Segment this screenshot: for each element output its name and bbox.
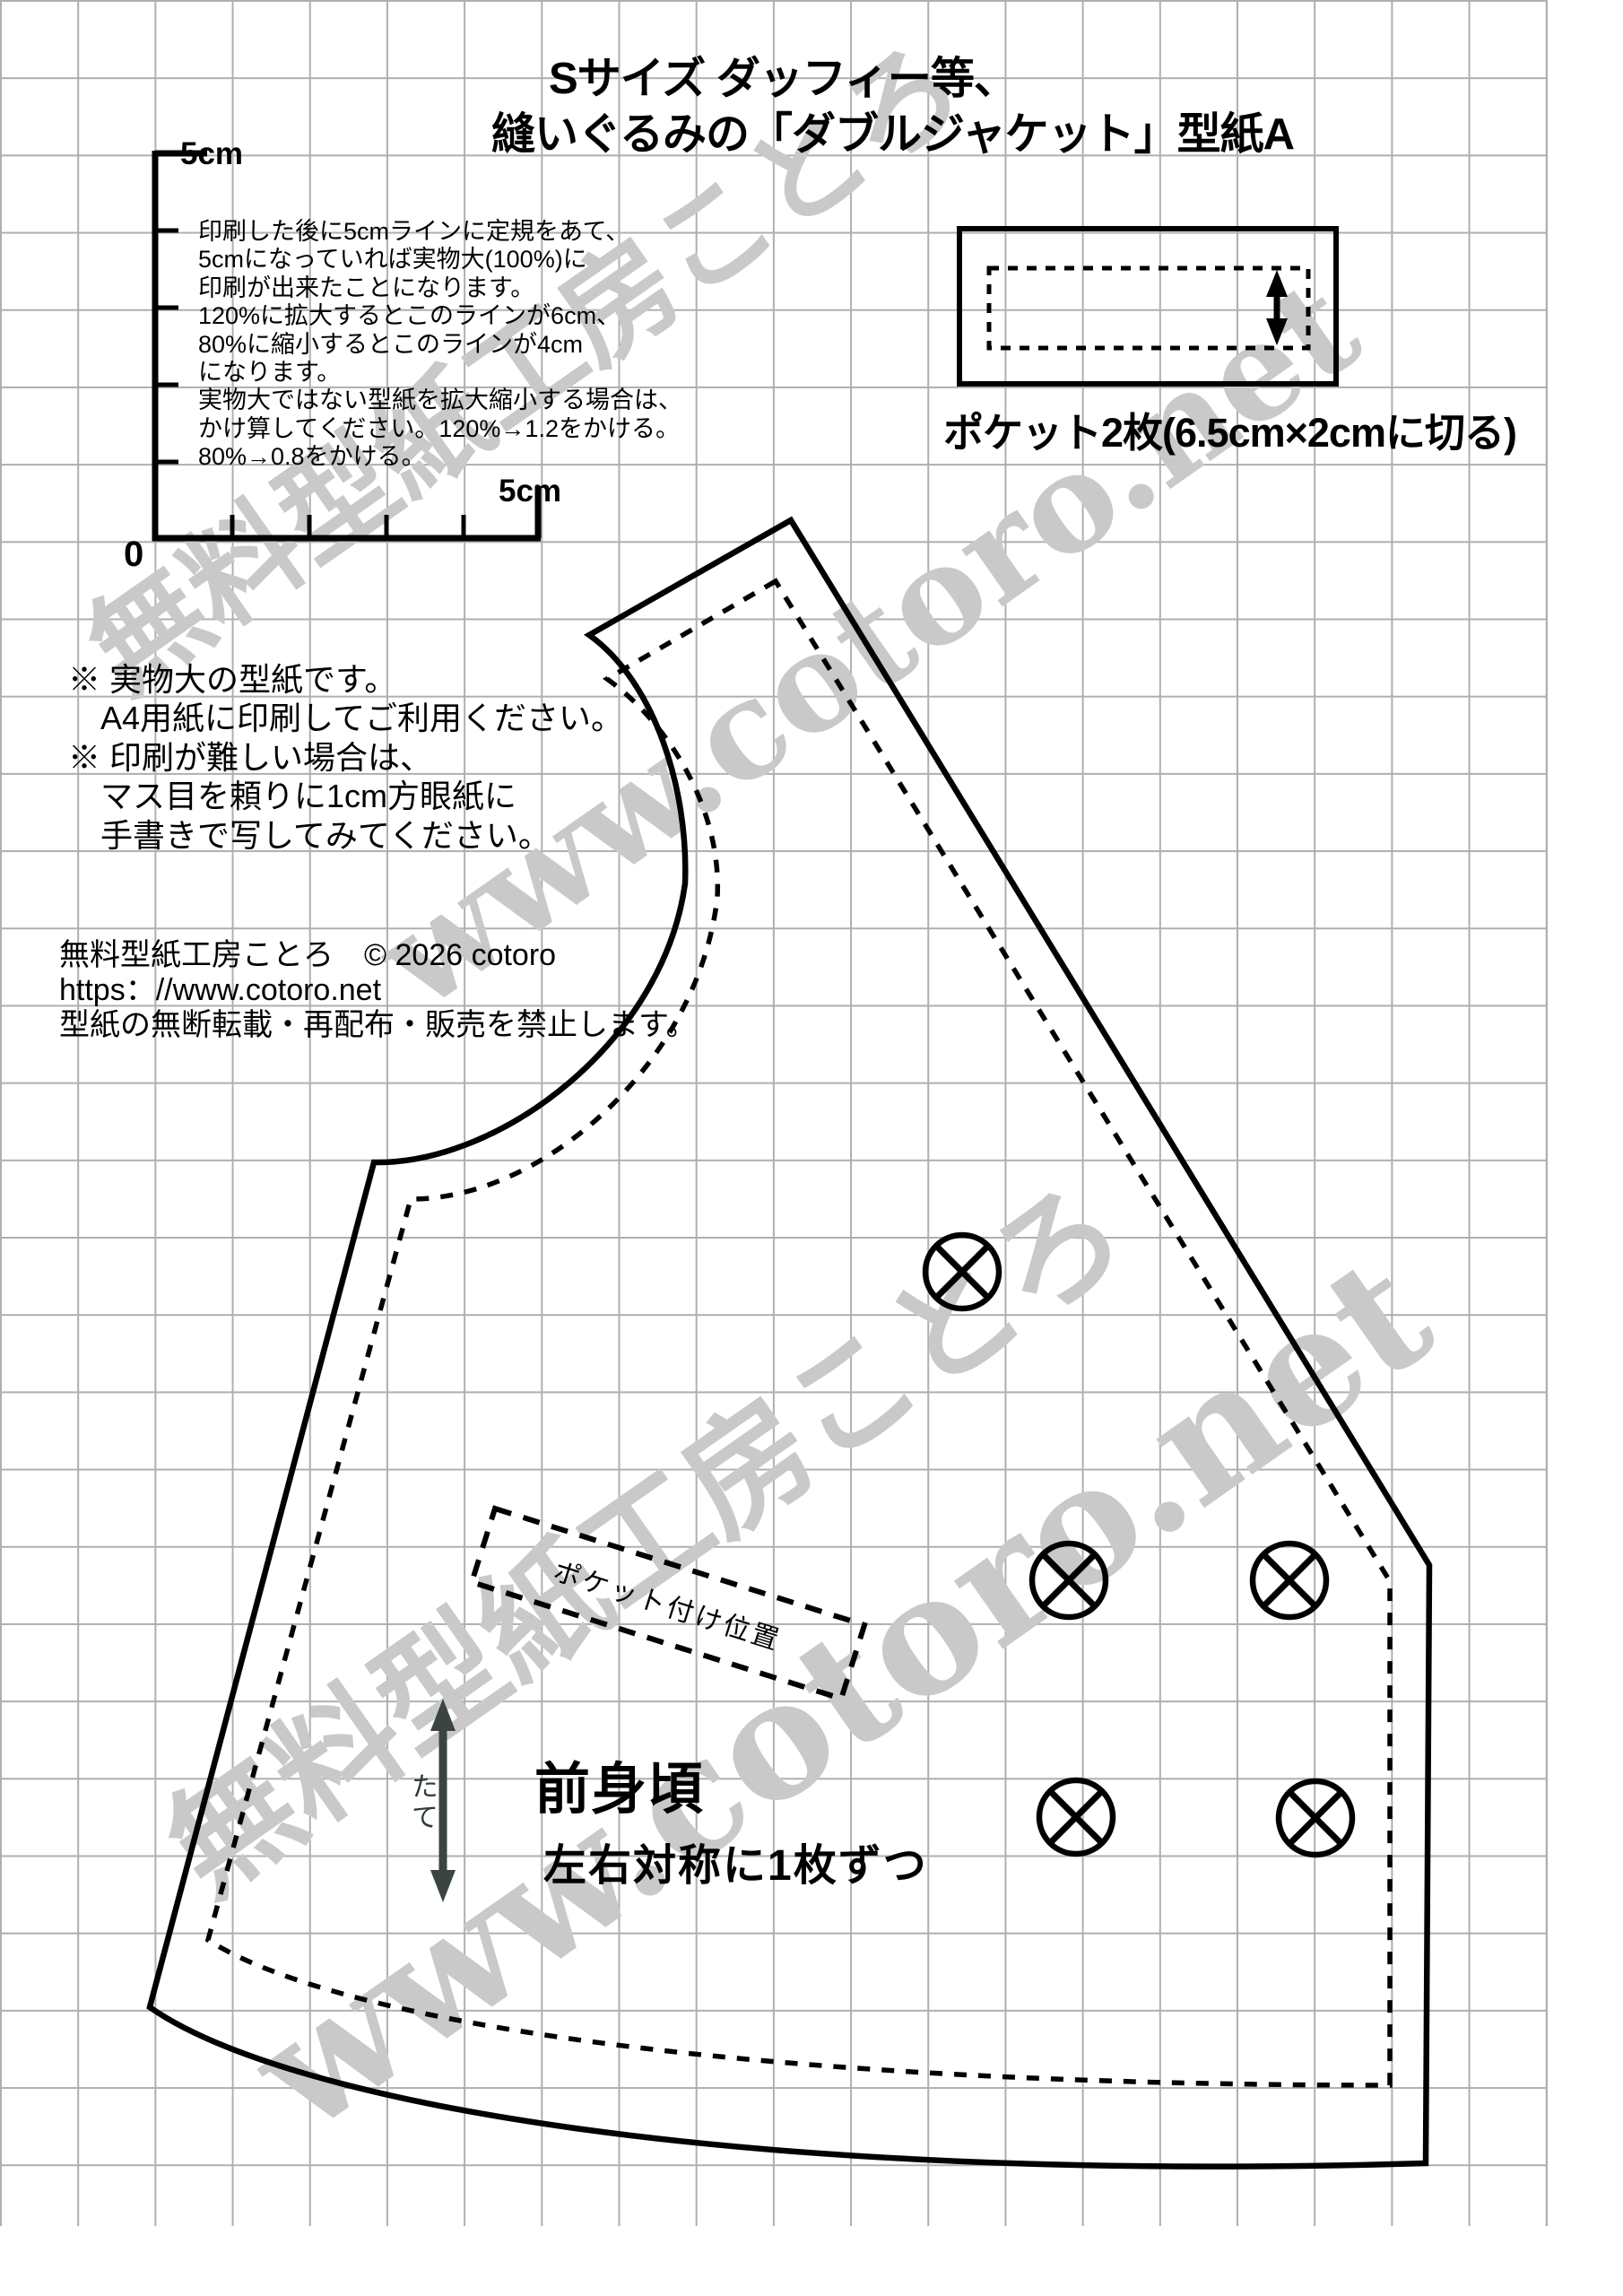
scale-instructions: 印刷した後に5cmラインに定規をあて、 5cmになっていれば実物大(100%)に… (198, 218, 682, 472)
scale-instruction-line: になります。 (198, 359, 682, 387)
pocket-piece-outline (959, 229, 1336, 384)
pocket-height-arrow (1266, 270, 1288, 345)
button-marks (925, 1235, 1352, 1855)
scale-instruction-line: かけ算してください。120%→1.2をかける。 (198, 415, 682, 443)
ruler-top-label: 5cm (180, 136, 243, 172)
usage-note-line: ※ 印刷が難しい場合は、 (68, 738, 623, 777)
copyright-notice: 型紙の無断転載・再配布・販売を禁止します。 (59, 1008, 697, 1043)
copyright-url: https：//www.cotoro.net (59, 973, 697, 1008)
usage-note-line: A4用紙に印刷してご利用ください。 (68, 699, 623, 737)
usage-note-line: 手書きで写してみてください。 (68, 816, 623, 855)
copyright-studio: 無料型紙工房ことろ © 2026 cotoro (59, 938, 697, 973)
piece-name: 前身頃 (534, 1744, 704, 1824)
page-title-line1: Sサイズ ダッフィー等、 (549, 43, 1017, 107)
usage-notes: ※ 実物大の型紙です。 A4用紙に印刷してご利用ください。 ※ 印刷が難しい場合… (68, 660, 623, 855)
scale-instruction-line: 120%に拡大するとこのラインが6cm、 (198, 302, 682, 330)
scale-instruction-line: 80%→0.8をかける。 (198, 443, 682, 471)
scale-instruction-line: 印刷が出来たことになります。 (198, 274, 682, 302)
button-mark (1279, 1781, 1352, 1855)
button-mark (1039, 1780, 1113, 1854)
scale-instruction-line: 実物大ではない型紙を拡大縮小する場合は、 (198, 387, 682, 414)
piece-cut-note: 左右対称に1枚ずつ (543, 1830, 928, 1892)
button-mark (1253, 1544, 1326, 1617)
usage-note-line: ※ 実物大の型紙です。 (68, 660, 623, 699)
ruler-origin-label: 0 (124, 535, 143, 575)
pattern-sheet: 無料型紙工房ことろ www.cotoro.net 無料型紙工房ことろ www.c… (0, 0, 1623, 2296)
grain-label: たて (402, 1772, 441, 1833)
page-title-line2: 縫いぐるみの「ダブルジャケット」型紙A (491, 99, 1294, 162)
scale-instruction-line: 80%に縮小するとこのラインが4cm (198, 331, 682, 359)
button-mark (1032, 1544, 1106, 1617)
copyright-block: 無料型紙工房ことろ © 2026 cotoro https：//www.coto… (59, 938, 697, 1043)
scale-instruction-line: 印刷した後に5cmラインに定規をあて、 (198, 218, 682, 246)
ruler-right-label: 5cm (499, 474, 561, 509)
scale-instruction-line: 5cmになっていれば実物大(100%)に (198, 246, 682, 274)
pocket-piece-caption: ポケット2枚(6.5cm×2cmに切る) (943, 400, 1516, 458)
button-mark (925, 1235, 999, 1309)
usage-note-line: マス目を頼りに1cm方眼紙に (68, 777, 623, 815)
